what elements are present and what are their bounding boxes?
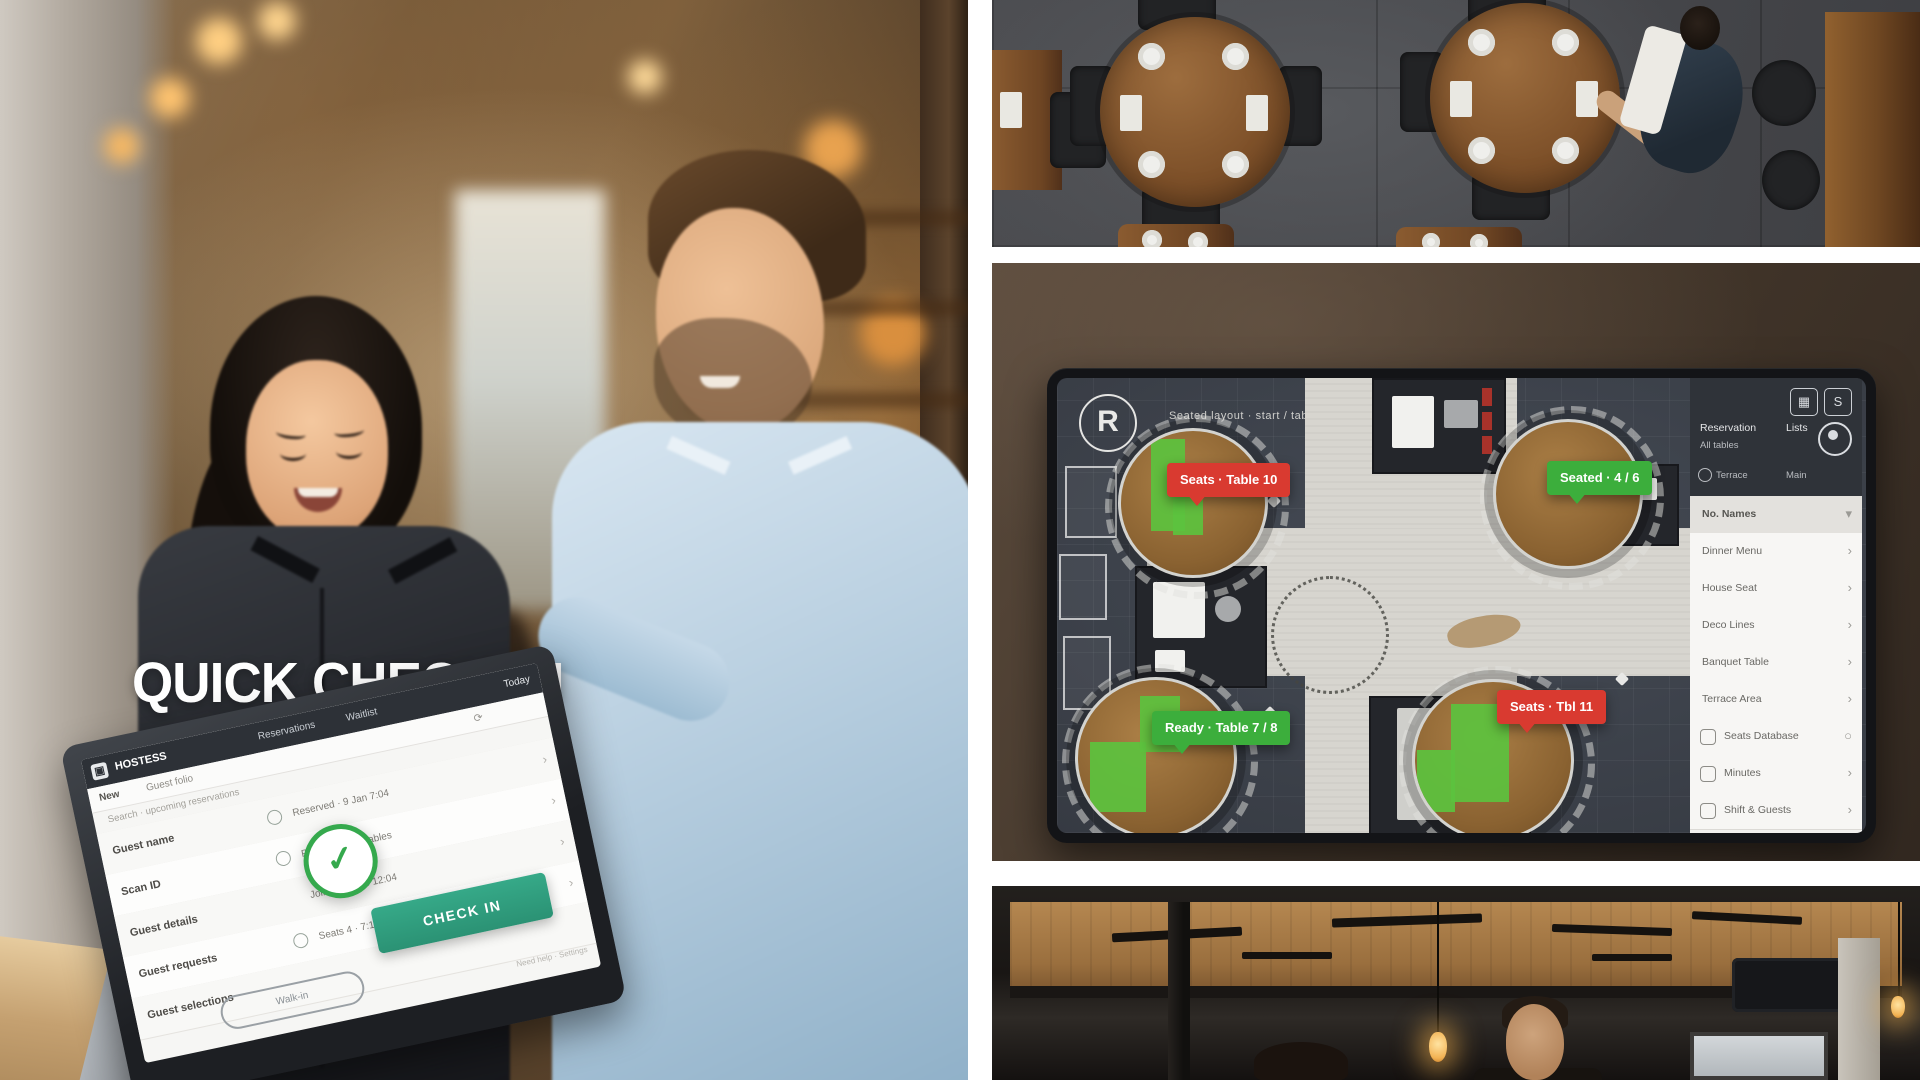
- chevron-right-icon: ›: [558, 833, 565, 849]
- pendant-light-glow: [150, 78, 190, 118]
- clock-icon: [1700, 766, 1716, 782]
- server-head: [1680, 6, 1720, 50]
- row-label: Banquet Table: [1702, 656, 1769, 668]
- clock-icon: [266, 808, 284, 826]
- plate: [1422, 233, 1440, 247]
- sidebar-list: No. Names ▾ Dinner Menu › House Seat › D…: [1690, 496, 1862, 833]
- sidebar-title: Reservation: [1700, 422, 1756, 434]
- sub-right-label[interactable]: Guest folio: [145, 773, 194, 794]
- pendant-light-glow: [104, 128, 140, 164]
- pendant-cord: [1437, 902, 1439, 1034]
- kitchen-station: [1372, 378, 1506, 474]
- row-label: No. Names: [1702, 508, 1756, 520]
- pin-icon: [1698, 468, 1712, 482]
- row-label: Minutes: [1724, 767, 1761, 779]
- row-label: Scan ID: [120, 878, 162, 898]
- pendant-bulb: [1891, 996, 1905, 1018]
- photo-hostess-guest: QUICK CHECK-IN ▣ HOSTESS Reservations Wa…: [0, 0, 968, 1080]
- sidebar-row[interactable]: Shift & Guests ›: [1690, 792, 1862, 830]
- chevron-right-icon: ›: [1848, 765, 1852, 780]
- photo-overhead-dining: [992, 0, 1920, 247]
- sidebar-row-header[interactable]: No. Names ▾: [1690, 496, 1862, 534]
- plant-symbol: [1271, 576, 1389, 694]
- row-label: Seats Database: [1724, 730, 1799, 742]
- chevron-right-icon: ›: [1848, 617, 1852, 632]
- hostess-eye: [280, 446, 306, 461]
- partial-table: [1396, 227, 1522, 247]
- row-label: Guest details: [129, 913, 199, 939]
- ceiling-light-glow: [628, 60, 662, 94]
- napkin: [1450, 81, 1472, 117]
- promo-collage: QUICK CHECK-IN ▣ HOSTESS Reservations Wa…: [0, 0, 1920, 1080]
- sidebar-subtitle: All tables: [1700, 440, 1739, 451]
- header-today-label[interactable]: Today: [503, 674, 531, 690]
- ceiling-slot: [1242, 952, 1332, 959]
- row-label: Terrace Area: [1702, 693, 1762, 705]
- ceiling-slot: [1592, 954, 1672, 961]
- chevron-right-icon: ›: [550, 792, 557, 808]
- avatar[interactable]: [1818, 422, 1852, 456]
- pendant-bulb: [1429, 1032, 1447, 1062]
- round-table: [1100, 17, 1290, 207]
- plate: [1470, 234, 1488, 247]
- table-status-badge[interactable]: Seats · Tbl 11: [1497, 690, 1606, 724]
- chevron-right-icon: ›: [1848, 802, 1852, 817]
- tab-reservations[interactable]: Reservations: [257, 720, 316, 743]
- stool: [1762, 150, 1820, 210]
- customer-figure: [552, 150, 968, 1080]
- status-circle-icon: ○: [1844, 728, 1852, 743]
- napkin: [1000, 92, 1022, 128]
- sidebar-row[interactable]: Deco Lines ›: [1690, 607, 1862, 645]
- plate: [1552, 137, 1579, 164]
- plate: [1142, 230, 1162, 247]
- app-title: HOSTESS: [114, 750, 168, 773]
- chevron-right-icon: ›: [567, 874, 574, 890]
- chevron-right-icon: ›: [1848, 654, 1852, 669]
- plate: [1468, 29, 1495, 56]
- back-wall: [1838, 938, 1880, 1080]
- plate: [1188, 232, 1208, 247]
- guests-icon: [1700, 803, 1716, 819]
- wood-cabinet: [1825, 12, 1920, 247]
- hostess-eye: [336, 444, 362, 459]
- customer-smile: [700, 376, 740, 388]
- chevron-right-icon: ›: [1848, 580, 1852, 595]
- grid-view-icon[interactable]: ▦: [1790, 388, 1818, 416]
- guest-hair: [1254, 1042, 1348, 1080]
- sidebar-lists-label[interactable]: Lists: [1786, 422, 1808, 434]
- window: [1690, 1032, 1828, 1080]
- row-label: Guest name: [111, 832, 175, 857]
- sidebar-terrace-label[interactable]: Terrace: [1716, 470, 1748, 481]
- napkin: [1246, 95, 1268, 131]
- sub-left-label[interactable]: New: [98, 789, 120, 804]
- support-column: [1168, 902, 1190, 1080]
- napkin: [1576, 81, 1598, 117]
- plate: [1468, 137, 1495, 164]
- sidebar-main-label[interactable]: Main: [1786, 470, 1807, 481]
- sidebar-row[interactable]: Dinner Menu ›: [1690, 533, 1862, 571]
- chevron-right-icon: ›: [1848, 543, 1852, 558]
- tab-waitlist[interactable]: Waitlist: [345, 706, 378, 723]
- database-icon: [1700, 729, 1716, 745]
- pendant-cord: [1898, 902, 1900, 998]
- s-badge-icon[interactable]: S: [1824, 388, 1852, 416]
- sidebar-row[interactable]: Banquet Table ›: [1690, 644, 1862, 682]
- ac-vent: [1732, 958, 1844, 1012]
- booth-outline: [1059, 554, 1107, 620]
- guest-head: [1506, 1004, 1564, 1080]
- table-status-badge[interactable]: Seats · Table 10: [1167, 463, 1290, 497]
- photo-restaurant-interior: [992, 886, 1920, 1080]
- plate: [1138, 151, 1165, 178]
- row-label: Guest requests: [138, 952, 219, 980]
- row-value: Reserved · 9 Jan 7:04: [292, 788, 391, 819]
- row-label: Deco Lines: [1702, 619, 1755, 631]
- napkin: [1120, 95, 1142, 131]
- sidebar-row[interactable]: Minutes ›: [1690, 755, 1862, 793]
- plan-table-7[interactable]: [1075, 677, 1237, 833]
- stool: [1752, 60, 1816, 126]
- table-status-badge[interactable]: Ready · Table 7 / 8: [1152, 711, 1290, 745]
- plate: [1138, 43, 1165, 70]
- chevron-right-icon: ›: [1848, 691, 1852, 706]
- floorplan-screen: R Seated layout · start / table view: [1057, 378, 1866, 833]
- floorplan-sidebar: ▦ S Reservation All tables Lists Terrace…: [1690, 378, 1862, 833]
- partial-table: [1118, 224, 1234, 247]
- row-label: House Seat: [1702, 582, 1757, 594]
- hostess-face: [246, 360, 388, 540]
- row-label: Shift & Guests: [1724, 804, 1791, 816]
- plate: [1222, 43, 1249, 70]
- refresh-icon[interactable]: ⟳: [472, 711, 484, 726]
- clock-icon: [274, 850, 292, 868]
- clock-icon: [292, 932, 310, 950]
- row-label: Dinner Menu: [1702, 545, 1762, 557]
- sidebar-row[interactable]: Terrace Area ›: [1690, 681, 1862, 719]
- app-logo-icon: ▣: [90, 762, 109, 781]
- chevron-right-icon: ›: [541, 751, 548, 767]
- dropdown-icon: ▾: [1845, 506, 1852, 522]
- plate: [1552, 29, 1579, 56]
- sidebar-row[interactable]: House Seat ›: [1690, 570, 1862, 608]
- ceiling-light-glow: [258, 2, 296, 40]
- round-table: [1430, 3, 1620, 193]
- plate: [1222, 151, 1249, 178]
- pendant-light-glow: [196, 18, 242, 64]
- floorplan-display-panel: R Seated layout · start / table view: [992, 263, 1920, 861]
- sidebar-row[interactable]: Seats Database ○: [1690, 718, 1862, 756]
- table-status-badge[interactable]: Seated · 4 / 6: [1547, 461, 1652, 495]
